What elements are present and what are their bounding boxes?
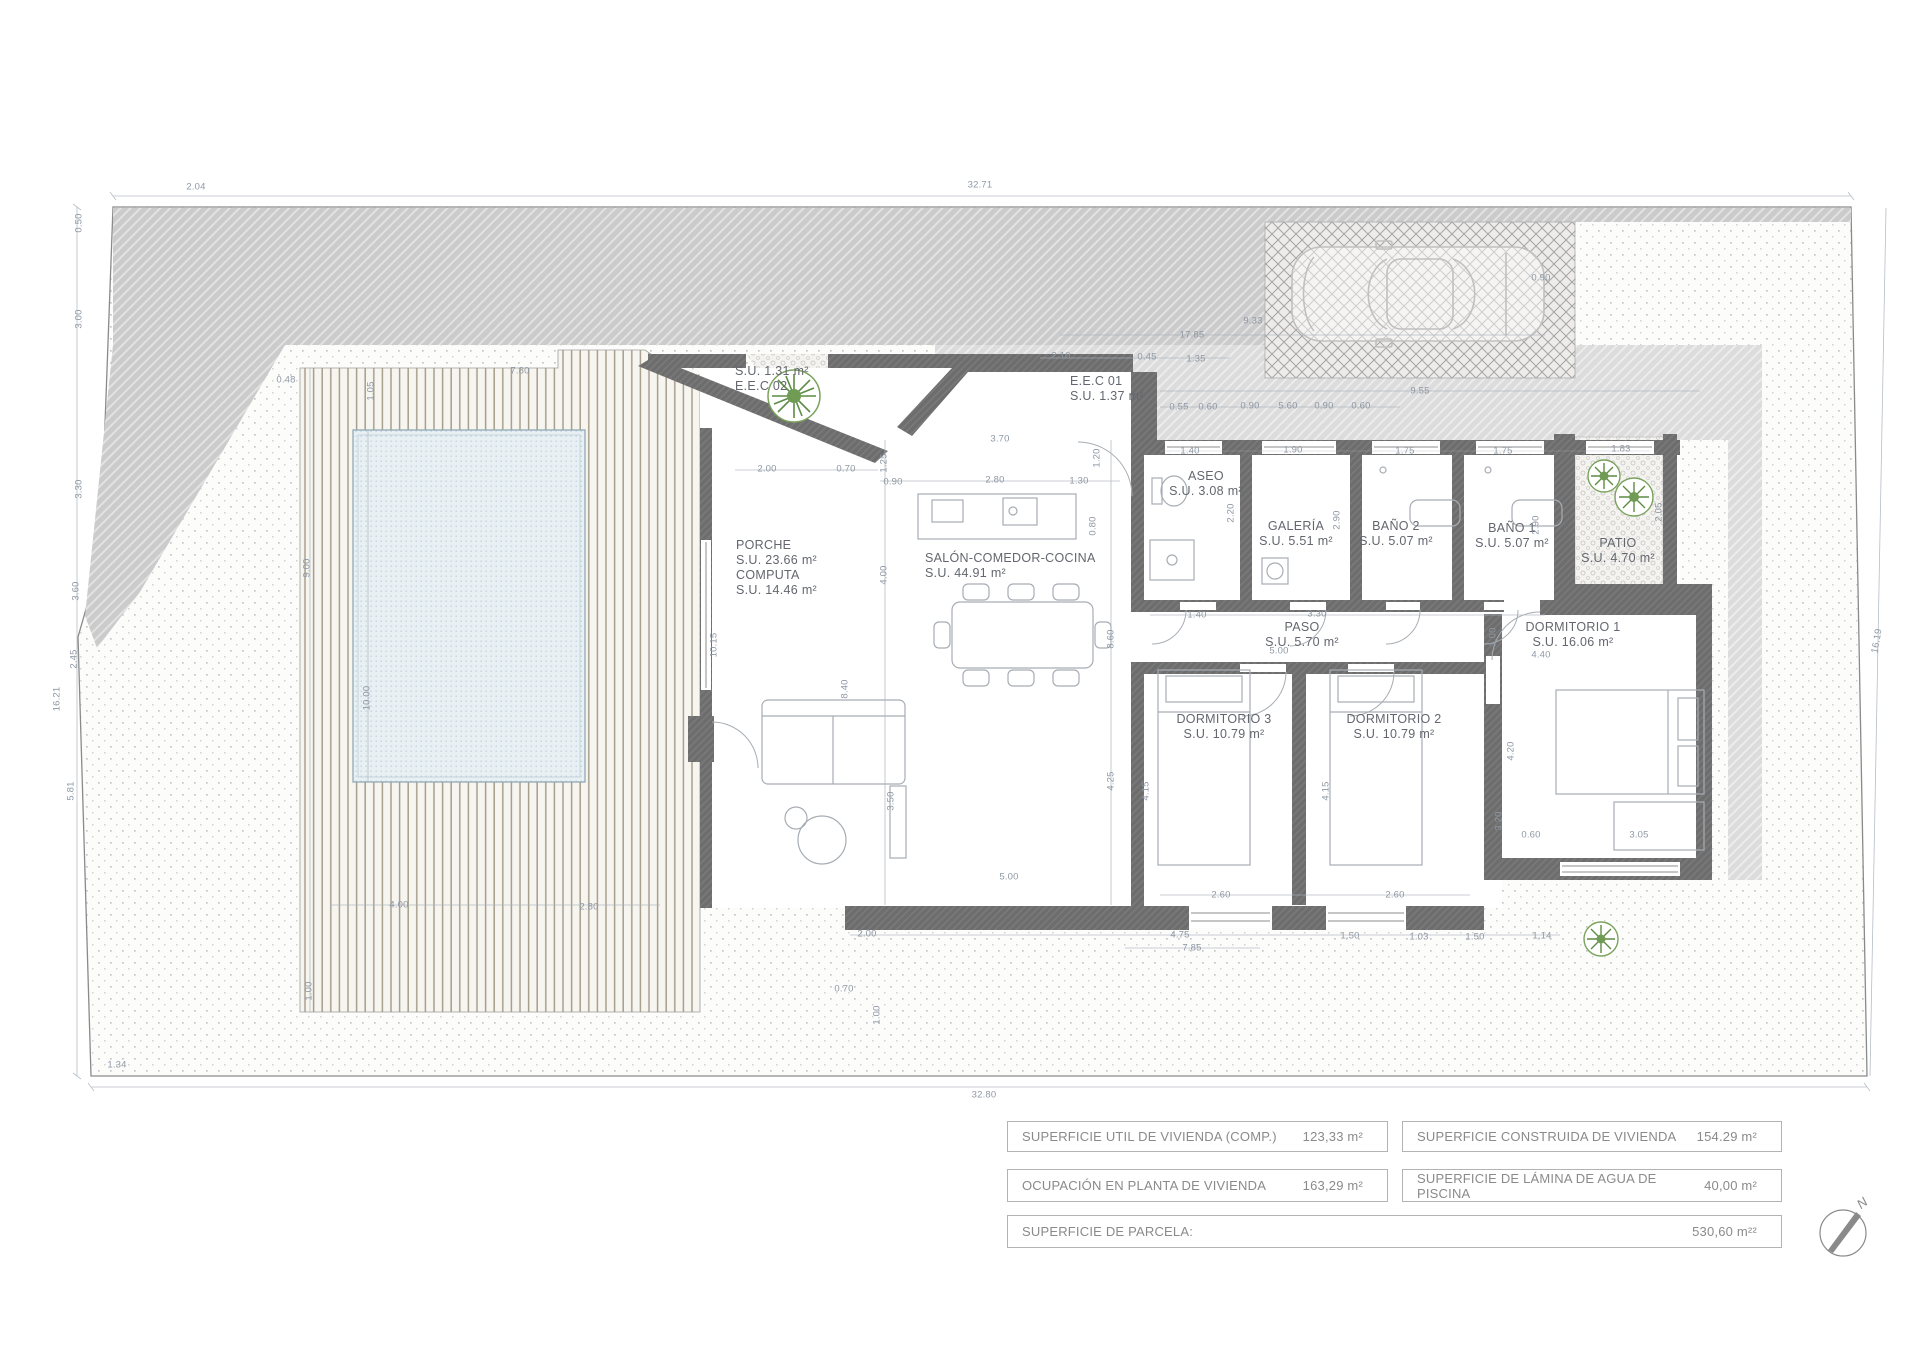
table-row-superficie-construida: SUPERFICIE CONSTRUIDA DE VIVIENDA 154.29… <box>1402 1121 1782 1152</box>
room-label: DORMITORIO 1S.U. 16.06 m² <box>1525 620 1620 650</box>
dimension-label: 3.30 <box>1307 609 1326 620</box>
dimension-label: 2.60 <box>1211 890 1230 901</box>
dimension-label: 1.34 <box>107 1060 126 1071</box>
car-top-view <box>1292 241 1544 347</box>
dimension-label: 7.80 <box>510 366 529 377</box>
dimension-label: 5.81 <box>66 781 77 800</box>
room-label: DORMITORIO 3S.U. 10.79 m² <box>1176 712 1271 742</box>
dimension-label: 3.00 <box>74 309 85 328</box>
table-value: 40,00 m² <box>1692 1178 1757 1193</box>
table-value: 154.29 m² <box>1685 1129 1757 1144</box>
table-value: 530,60 m²² <box>1680 1224 1757 1239</box>
dimension-label: 2.10 <box>1051 351 1070 362</box>
dimension-label: 2.45 <box>69 649 80 668</box>
dimension-label: 10.15 <box>709 633 720 658</box>
dimension-label: 3.50 <box>886 791 897 810</box>
swimming-pool <box>353 430 585 782</box>
dimension-label: 4.15 <box>1321 781 1332 800</box>
dimension-label: 5.00 <box>1269 646 1288 657</box>
dimension-label: 4.25 <box>1106 771 1117 790</box>
dimension-label: 1.14 <box>1532 931 1551 942</box>
dimension-label: 0.60 <box>1351 401 1370 412</box>
table-row-ocupacion: OCUPACIÓN EN PLANTA DE VIVIENDA 163,29 m… <box>1007 1169 1388 1202</box>
dimension-label: 0.70 <box>834 984 853 995</box>
north-compass <box>1820 1210 1866 1256</box>
room-label: E.E.C 01S.U. 1.37 m² <box>1070 374 1144 404</box>
dimension-label: 16.21 <box>52 687 63 712</box>
dimension-label: 4.40 <box>1531 650 1550 661</box>
dimension-label: 1.03 <box>1409 932 1428 943</box>
dimension-label: 10.00 <box>362 686 373 711</box>
dimension-label: 9.55 <box>1410 386 1429 397</box>
dimension-label: 9.00 <box>302 558 313 577</box>
table-label: SUPERFICIE CONSTRUIDA DE VIVIENDA <box>1417 1129 1676 1144</box>
dimension-label: 2.80 <box>579 902 598 913</box>
room-label: BAÑO 2S.U. 5.07 m² <box>1359 519 1433 549</box>
table-label: OCUPACIÓN EN PLANTA DE VIVIENDA <box>1022 1178 1266 1193</box>
dimension-label: 5.00 <box>999 872 1018 883</box>
dimension-label: 1.05 <box>366 381 377 400</box>
dimension-label: 3.70 <box>990 434 1009 445</box>
dimension-label: 4.15 <box>1141 781 1152 800</box>
room-label: ASEOS.U. 3.08 m² <box>1169 469 1243 499</box>
floor-plan-drawing <box>0 0 1920 1357</box>
table-value: 123,33 m² <box>1291 1129 1363 1144</box>
dimension-label: 4.75 <box>1170 930 1189 941</box>
dimension-label: 3.05 <box>1629 830 1648 841</box>
room-label: PORCHES.U. 23.66 m² <box>736 538 817 568</box>
patio-floor <box>1575 437 1663 595</box>
dimension-label: 7.85 <box>1182 943 1201 954</box>
dimension-label: 2.20 <box>1226 503 1237 522</box>
dimension-label: 0.90 <box>1314 401 1333 412</box>
room-label: DORMITORIO 2S.U. 10.79 m² <box>1346 712 1441 742</box>
dimension-label: 1.25 <box>879 453 890 472</box>
table-label: SUPERFICIE DE LÁMINA DE AGUA DE PISCINA <box>1417 1171 1692 1201</box>
dimension-label: 4.20 <box>1506 741 1517 760</box>
table-row-superficie-util: SUPERFICIE UTIL DE VIVIENDA (COMP.) 123,… <box>1007 1121 1388 1152</box>
dimension-label: 2.05 <box>1654 502 1665 521</box>
dimension-label: 0.45 <box>1137 352 1156 363</box>
room-label: PATIOS.U. 4.70 m² <box>1581 536 1655 566</box>
dimension-label: 8.40 <box>840 679 851 698</box>
dimension-label: 0.60 <box>1521 830 1540 841</box>
dimension-label: 2.90 <box>1531 515 1542 534</box>
dimension-label: 2.90 <box>1332 510 1343 529</box>
dimension-label: 1.90 <box>1283 445 1302 456</box>
dimension-label: 3.30 <box>74 479 85 498</box>
dimension-label: 0.48 <box>276 375 295 386</box>
dimension-label: 0.90 <box>1240 401 1259 412</box>
dimension-label: 1.00 <box>1488 627 1499 646</box>
dimension-label: 0.50 <box>74 213 85 232</box>
dimension-label: 3.60 <box>71 581 82 600</box>
dimension-label: 32.71 <box>968 180 993 191</box>
dimension-label: 0.60 <box>1198 402 1217 413</box>
dimension-label: 2.00 <box>857 929 876 940</box>
dimension-label: 1.40 <box>1180 446 1199 457</box>
dimension-label: 4.00 <box>389 900 408 911</box>
dimension-label: 0.90 <box>883 477 902 488</box>
dimension-label: 1.75 <box>1493 446 1512 457</box>
dimension-label: 1.35 <box>1186 354 1205 365</box>
dimension-label: 0.70 <box>836 464 855 475</box>
dimension-label: 3.20 <box>1494 811 1505 830</box>
dimension-label: 0.55 <box>1169 402 1188 413</box>
dimension-label: 1.83 <box>1611 444 1630 455</box>
east-path-hatch <box>1728 345 1762 880</box>
dimension-label: 1.40 <box>1187 610 1206 621</box>
dimension-label: 1.30 <box>1069 476 1088 487</box>
plant-icon <box>1588 460 1620 492</box>
dimension-label: 1.00 <box>304 981 315 1000</box>
dimension-label: 32.80 <box>972 1090 997 1101</box>
dimension-label: 1.00 <box>872 1005 883 1024</box>
table-row-lamina-agua: SUPERFICIE DE LÁMINA DE AGUA DE PISCINA … <box>1402 1169 1782 1202</box>
dimension-label: 2.00 <box>757 464 776 475</box>
dimension-label: 2.04 <box>186 182 205 193</box>
table-label: SUPERFICIE DE PARCELA: <box>1022 1224 1193 1239</box>
table-row-parcela: SUPERFICIE DE PARCELA: 530,60 m²² <box>1007 1215 1782 1248</box>
dimension-label: 4.00 <box>879 565 890 584</box>
table-value: 163,29 m² <box>1291 1178 1363 1193</box>
dimension-label: 17.85 <box>1180 330 1205 341</box>
floor-plan-page: PORCHES.U. 23.66 m²COMPUTAS.U. 14.46 m²S… <box>0 0 1920 1357</box>
table-label: SUPERFICIE UTIL DE VIVIENDA (COMP.) <box>1022 1129 1277 1144</box>
dimension-label: 0.90 <box>1531 273 1550 284</box>
dimension-label: 2.60 <box>1385 890 1404 901</box>
room-label: GALERÍAS.U. 5.51 m² <box>1259 519 1333 549</box>
dimension-label: 1.20 <box>1092 448 1103 467</box>
dimension-label: 1.75 <box>1395 446 1414 457</box>
plant-icon <box>1615 478 1653 516</box>
dimension-label: 1.50 <box>1465 932 1484 943</box>
dimension-label: 0.80 <box>1088 516 1099 535</box>
dimension-label: 9.33 <box>1243 316 1262 327</box>
room-label: SALÓN-COMEDOR-COCINAS.U. 44.91 m² <box>925 551 1096 581</box>
plant-icon <box>1584 922 1618 956</box>
dimension-label: 1.50 <box>1340 931 1359 942</box>
room-label: COMPUTAS.U. 14.46 m² <box>736 568 817 598</box>
dimension-label: 5.60 <box>1278 401 1297 412</box>
room-label: S.U. 1.31 m²E.E.C 02 <box>735 364 809 394</box>
dimension-label: 8.60 <box>1106 629 1117 648</box>
dimension-label: 2.80 <box>985 475 1004 486</box>
